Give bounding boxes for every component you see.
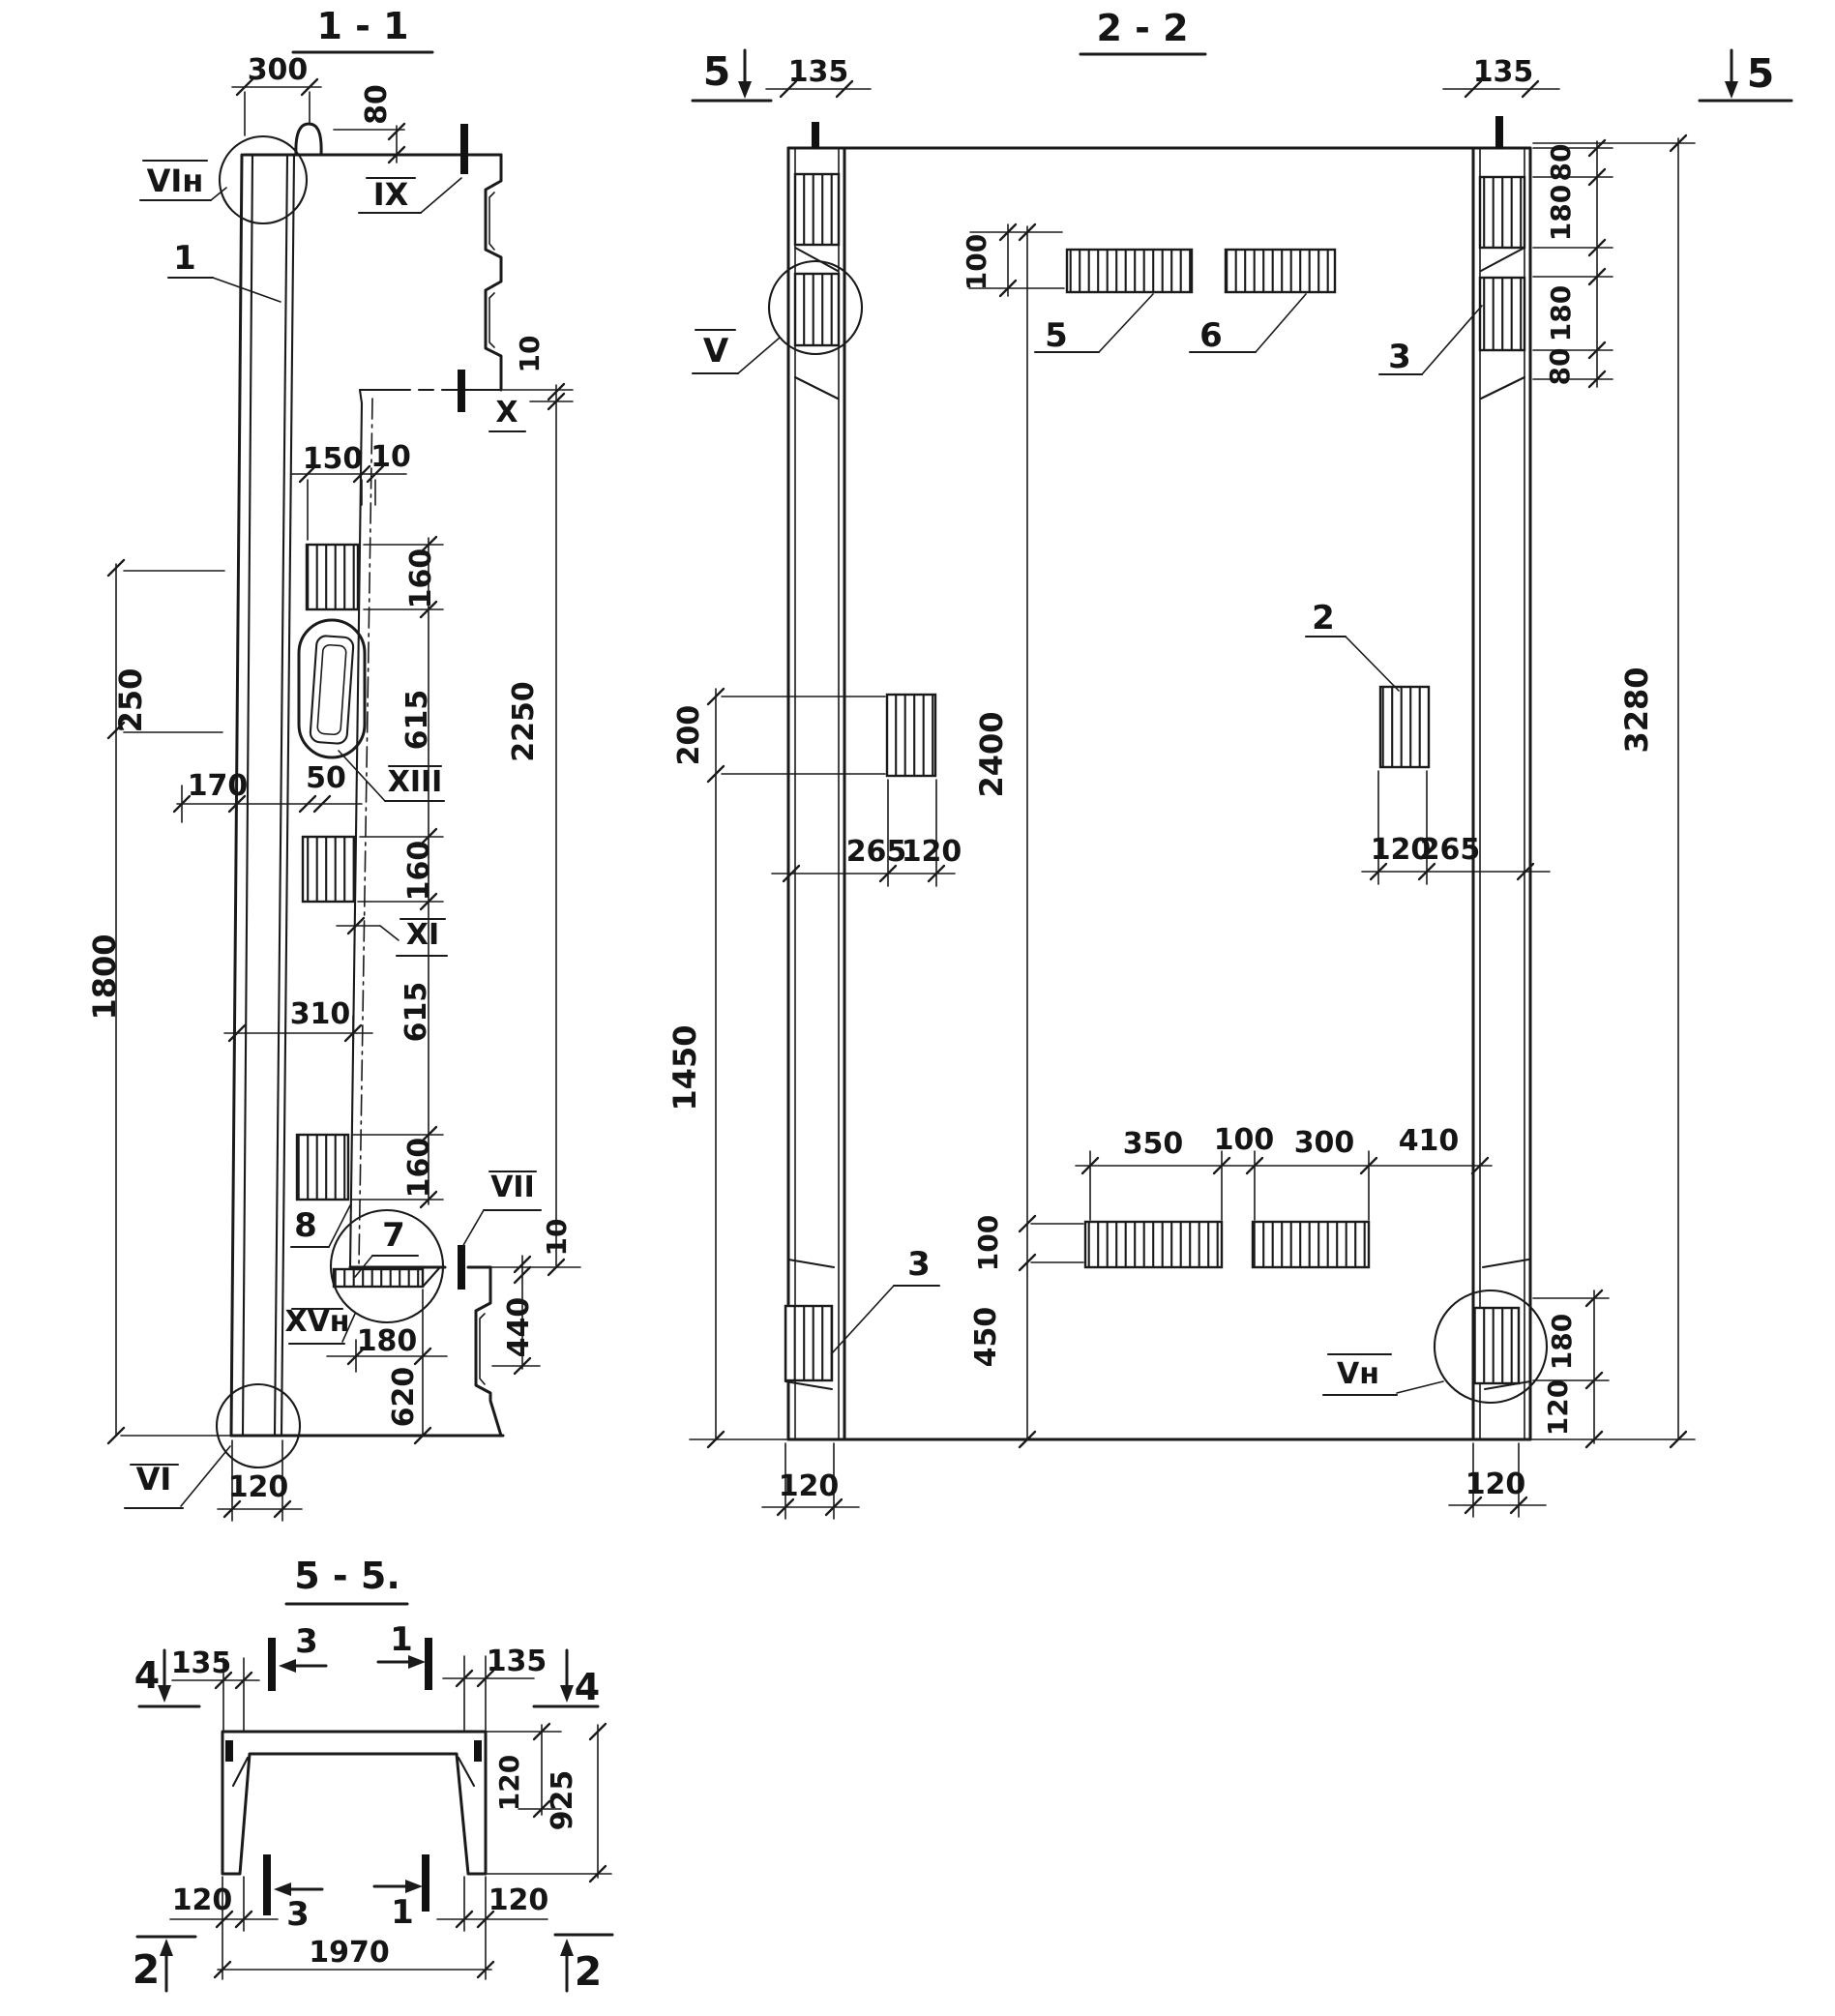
- section-1-1: 1 - 1: [86, 5, 580, 1521]
- dim-2400: 2400: [973, 711, 1010, 797]
- marker-vi-n: VIн: [147, 163, 204, 199]
- dim-120: 120: [228, 1470, 289, 1504]
- section-title: 2 - 2: [1096, 7, 1188, 49]
- embedded-plates-2-2: [785, 174, 1524, 1383]
- embedded-plate: [1085, 1222, 1222, 1267]
- dim-135: 135: [171, 1646, 232, 1680]
- cut-label-4-left: 4: [134, 1654, 160, 1697]
- dim-120: 120: [902, 835, 962, 869]
- cut-marks-5: 5 5: [693, 48, 1791, 101]
- label-pos-6: 6: [1199, 316, 1223, 355]
- embedded-plate: [1226, 250, 1335, 292]
- section-title: 1 - 1: [316, 5, 408, 47]
- marker-x: X: [495, 396, 518, 430]
- dim-120: 120: [1465, 1468, 1526, 1501]
- dim-100: 100: [1214, 1123, 1275, 1157]
- dim-160: 160: [404, 548, 438, 609]
- dim-80: 80: [1544, 348, 1576, 386]
- dim-200: 200: [672, 705, 706, 766]
- section-5-5: 5 - 5. 3 1 4 4 3 1 2 2: [133, 1555, 612, 1995]
- embedded-plate: [1480, 278, 1524, 350]
- embedded-plate: [1067, 250, 1192, 292]
- dim-1450: 1450: [666, 1024, 703, 1111]
- lifting-loop: [296, 124, 321, 155]
- dim-450: 450: [969, 1307, 1003, 1368]
- label-pos-8: 8: [294, 1206, 317, 1245]
- marker-v: V: [703, 332, 729, 371]
- panel-profile-1-1: [231, 124, 503, 1436]
- dim-180: 180: [357, 1324, 418, 1358]
- cut-label-3-bottom: 3: [286, 1895, 310, 1934]
- cut-label-5-left: 5: [703, 48, 731, 95]
- dim-150: 150: [303, 442, 364, 476]
- dim-120: 120: [172, 1883, 233, 1917]
- embedded-plate: [1380, 687, 1429, 767]
- dimensions-1-1: 300 80 10 2250 150 10 250 1800 170 50: [86, 53, 580, 1521]
- markers-1-1: VIн IX 1 X XIII XI 8 7 VII XVн VI: [125, 161, 541, 1508]
- dim-925: 925: [546, 1770, 579, 1831]
- marker-xv-n: XVн: [284, 1305, 349, 1339]
- embedded-plate: [795, 174, 839, 245]
- dim-180: 180: [1546, 1314, 1578, 1370]
- embedded-plate: [1480, 177, 1524, 248]
- embedded-plate: [297, 1135, 348, 1200]
- cut-label-1-top: 1: [390, 1620, 413, 1659]
- cut-label-4-right: 4: [575, 1666, 600, 1708]
- cut-label-2-right: 2: [575, 1948, 603, 1995]
- cut-label-2-left: 2: [133, 1946, 161, 1993]
- label-pos-5: 5: [1045, 316, 1068, 355]
- dim-50: 50: [306, 761, 346, 795]
- detail-circle-vi-bottom: [217, 1384, 300, 1468]
- dim-160: 160: [402, 841, 436, 902]
- dim-250: 250: [112, 668, 149, 733]
- dim-1970: 1970: [309, 1936, 390, 1970]
- marker-vii: VII: [490, 1171, 535, 1204]
- cut-label-5-right: 5: [1747, 50, 1775, 97]
- dim-180: 180: [1545, 285, 1577, 341]
- marker-ix: IX: [373, 176, 409, 213]
- cut-label-1-bottom: 1: [391, 1893, 414, 1932]
- dim-135: 135: [487, 1645, 548, 1678]
- dim-10: 10: [541, 1219, 573, 1257]
- dim-300: 300: [1294, 1126, 1355, 1160]
- dim-120: 120: [1542, 1379, 1574, 1436]
- dim-80: 80: [1545, 144, 1577, 182]
- label-pos-1: 1: [173, 239, 196, 278]
- dim-350: 350: [1123, 1127, 1184, 1161]
- embedded-plate: [1473, 1308, 1519, 1383]
- marker-xi: XI: [406, 918, 439, 952]
- dim-120: 120: [488, 1883, 549, 1917]
- dim-3280: 3280: [1618, 667, 1655, 753]
- cut-label-3-top: 3: [295, 1622, 318, 1661]
- dim-80: 80: [360, 84, 394, 125]
- dim-120: 120: [493, 1755, 525, 1811]
- dim-10-step: 10: [514, 336, 546, 373]
- dim-265: 265: [1420, 833, 1481, 867]
- dim-135: 135: [1473, 55, 1534, 89]
- dim-300: 300: [248, 53, 309, 87]
- embedded-plate: [1253, 1222, 1369, 1267]
- dim-100: 100: [961, 234, 992, 290]
- dim-180: 180: [1545, 185, 1577, 241]
- embedded-plate: [303, 837, 354, 902]
- dim-620: 620: [387, 1367, 421, 1428]
- dim-135: 135: [788, 55, 849, 89]
- marker-vi: VI: [136, 1461, 172, 1497]
- label-pos-7: 7: [382, 1216, 405, 1255]
- embedded-plate: [785, 1306, 832, 1380]
- dim-170: 170: [188, 769, 249, 803]
- dim-440: 440: [502, 1297, 536, 1358]
- label-pos-3: 3: [1388, 338, 1411, 376]
- dim-265: 265: [846, 835, 907, 869]
- dim-1800: 1800: [86, 934, 123, 1020]
- marker-xiii: XIII: [388, 765, 443, 799]
- lifting-slot: [299, 620, 365, 757]
- label-pos-3: 3: [907, 1245, 931, 1284]
- section-title: 5 - 5.: [294, 1555, 400, 1597]
- channel-profile-5-5: [222, 1732, 486, 1874]
- section-2-2: 2 - 2: [666, 7, 1791, 1519]
- embedded-plate: [307, 545, 358, 609]
- dim-615: 615: [400, 690, 434, 751]
- drawing-sheet: 1 - 1: [0, 0, 1835, 2016]
- embedded-plate: [887, 695, 935, 776]
- dim-310: 310: [290, 997, 351, 1031]
- dim-2250: 2250: [507, 681, 541, 762]
- dim-100: 100: [972, 1215, 1004, 1271]
- dim-10: 10: [370, 440, 411, 474]
- flange-plate-strip: [334, 1269, 423, 1287]
- dim-120: 120: [779, 1469, 840, 1503]
- dim-160: 160: [402, 1138, 436, 1199]
- embedded-plate: [795, 274, 839, 345]
- dim-410: 410: [1399, 1124, 1460, 1158]
- label-pos-2: 2: [1312, 599, 1335, 637]
- dim-615: 615: [400, 982, 433, 1043]
- marker-v-n: Vн: [1337, 1357, 1379, 1391]
